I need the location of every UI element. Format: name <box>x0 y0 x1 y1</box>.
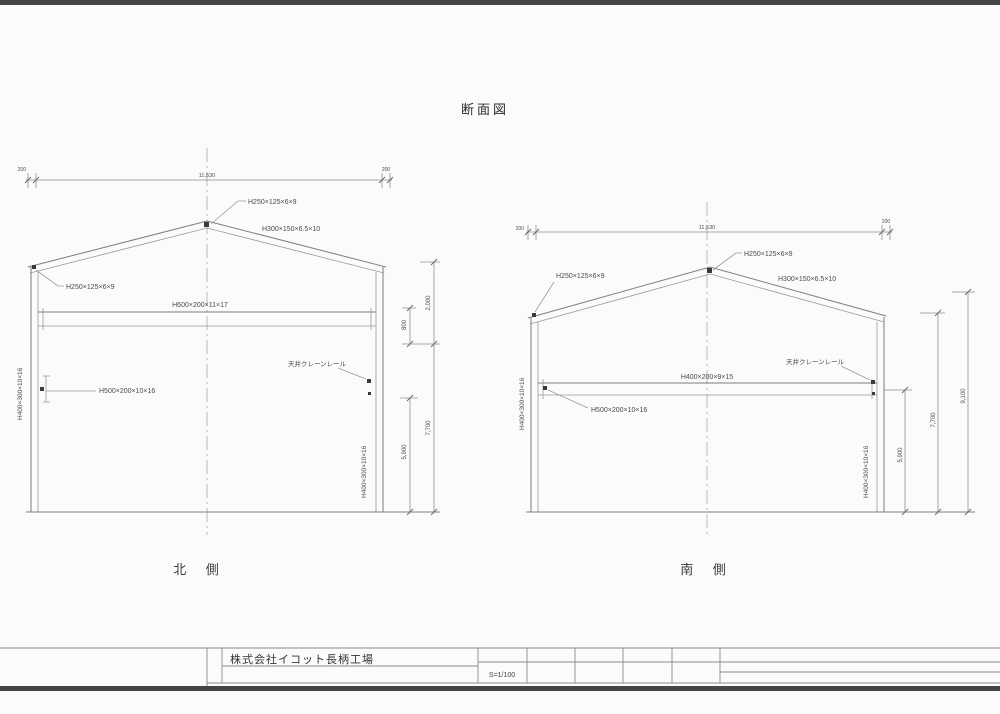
north-dim-left-200: 200 <box>18 167 27 173</box>
south-right-column-label: H400×300×10×16 <box>863 445 870 498</box>
north-dim-eave-height: 7,700 <box>426 420 432 436</box>
south-dim-crane-height: 5,900 <box>898 447 904 463</box>
south-caption: 南 側 <box>680 562 734 577</box>
south-dim-left-200: 200 <box>516 226 525 232</box>
south-dim-right-200: 200 <box>882 219 891 225</box>
north-section-drawing: 200 11,530 200 H250×125×6×9 H300×150×6.5… <box>17 148 440 577</box>
drawing-scale: S=1/100 <box>489 672 515 679</box>
north-eave-member-label: H250×125×6×9 <box>66 284 115 291</box>
north-crane-rail-label: 天井クレーンレール <box>288 359 347 368</box>
drawing-sheet: 断面図 200 11,530 200 <box>0 0 1000 714</box>
south-dim-span: 11,530 <box>699 225 715 231</box>
north-dim-upper: 2,000 <box>426 295 432 311</box>
north-caption: 北 側 <box>173 562 227 577</box>
south-dim-eave-height: 7,700 <box>931 412 937 428</box>
north-dim-crane-height: 5,900 <box>402 444 408 460</box>
sheet-bottom-border <box>0 686 1000 691</box>
drawing-title: 断面図 <box>461 102 509 117</box>
north-dim-right-200: 200 <box>382 167 391 173</box>
south-section-drawing: 200 11,530 200 H250×125×6×9 H250×125×6×9… <box>516 202 975 577</box>
north-left-column-label: H400×300×10×16 <box>17 367 24 420</box>
south-crane-rail-label: 天井クレーンレール <box>786 357 845 366</box>
south-apex-member-label: H250×125×6×9 <box>744 251 793 258</box>
sheet-top-border <box>0 0 1000 5</box>
north-apex-member-label: H250×125×6×9 <box>248 199 297 206</box>
south-eave-member-label: H250×125×6×9 <box>556 273 605 280</box>
section-drawing-svg: 断面図 200 11,530 200 <box>0 0 1000 714</box>
north-tie-member-label: H600×200×11×17 <box>172 302 228 309</box>
south-bracket-member-label: H500×200×10×16 <box>591 407 647 414</box>
title-block: 株式会社イコット長柄工場 S=1/100 <box>0 648 1000 686</box>
south-rafter-member-label: H300×150×6.5×10 <box>778 276 836 283</box>
north-dim-beam: 800 <box>402 319 408 330</box>
north-right-column-label: H400×300×10×16 <box>361 445 368 498</box>
south-dim-total-height: 9,100 <box>961 388 967 404</box>
south-left-column-label: H400×300×10×16 <box>519 377 526 430</box>
south-tie-member-label: H400×200×9×15 <box>681 374 733 381</box>
company-name: 株式会社イコット長柄工場 <box>230 652 374 666</box>
north-bracket-member-label: H500×200×10×16 <box>99 388 155 395</box>
north-dim-span: 11,530 <box>199 173 215 179</box>
north-rafter-member-label: H300×150×6.5×10 <box>262 226 320 233</box>
